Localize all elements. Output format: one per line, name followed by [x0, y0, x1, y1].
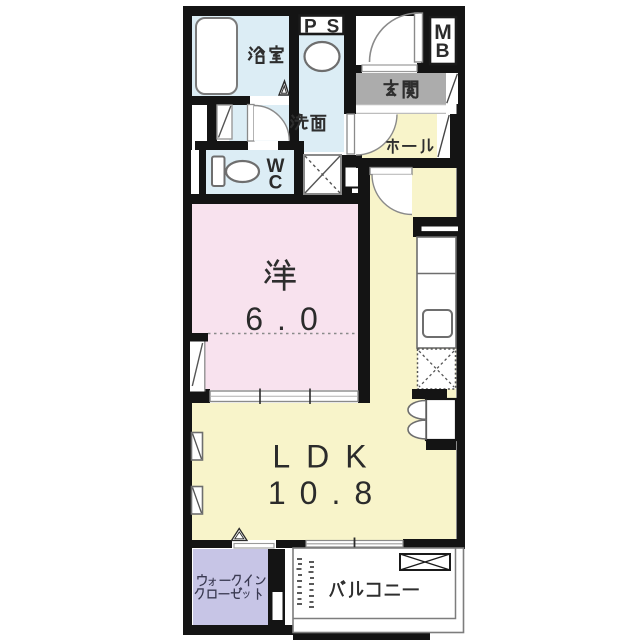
svg-text:6.0: 6.0: [245, 301, 331, 337]
svg-text:10.8: 10.8: [268, 475, 386, 511]
svg-text:B: B: [435, 40, 449, 62]
svg-text:C: C: [269, 173, 283, 194]
svg-text:LDK: LDK: [272, 439, 382, 475]
svg-text:PS: PS: [304, 16, 349, 37]
